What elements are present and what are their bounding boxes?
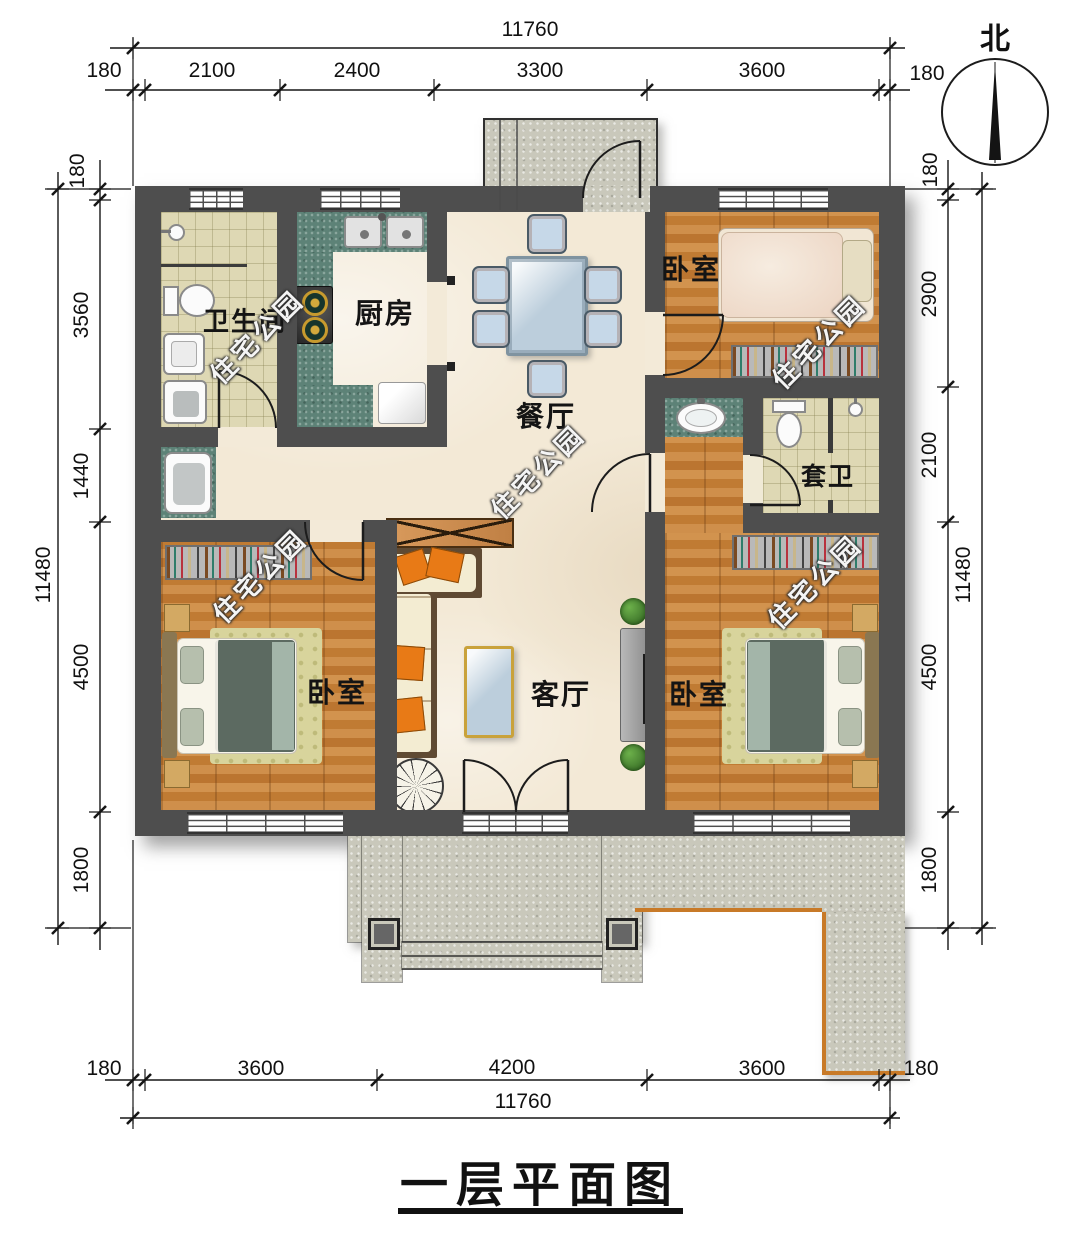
kitchen-sink-left — [344, 216, 382, 248]
divider-cabinet — [386, 518, 514, 548]
shower-arm-icon — [161, 230, 171, 233]
dim-label: 180 — [909, 62, 944, 86]
bedroomTR-door-opening — [645, 312, 665, 375]
washer — [163, 333, 205, 375]
kitchen-counter-bottom — [297, 385, 373, 427]
dining-chair — [527, 214, 567, 254]
coffee-table — [464, 646, 514, 738]
dim-label: 3300 — [517, 59, 564, 83]
terrace-column-right — [606, 918, 638, 950]
wall-pilaster-tab — [447, 276, 455, 285]
wall-hall-stub — [645, 398, 665, 453]
ensuite-partition — [828, 500, 833, 514]
dim-label: 3600 — [739, 1057, 786, 1081]
walkway-horizontal — [635, 836, 822, 912]
room-label-ensuite: 套卫 — [801, 457, 855, 493]
bed-headboard — [162, 632, 177, 758]
dim-label: 180 — [86, 59, 121, 83]
room-label-bedroom-top-right: 卧室 — [661, 248, 721, 288]
plant-icon — [620, 744, 647, 771]
wall-exterior-right — [879, 186, 905, 836]
plant-icon — [620, 598, 647, 625]
bathroom-sink — [163, 380, 207, 424]
bed-throw — [272, 642, 294, 750]
walkway-vertical — [822, 912, 905, 1075]
kitchen-faucet-icon — [378, 213, 386, 221]
dining-chair — [472, 266, 510, 304]
window — [718, 188, 828, 210]
hall-door-opening — [645, 453, 665, 512]
ensuite-toilet-bowl — [776, 412, 802, 448]
room-label-kitchen: 厨房 — [355, 292, 415, 332]
washer-inner — [171, 341, 197, 367]
dim-label: 11760 — [502, 18, 559, 42]
walkway-corner — [822, 836, 905, 912]
entrance-threshold — [462, 812, 568, 834]
basin-inner — [685, 409, 717, 427]
room-label-bedroom-left: 卧室 — [307, 671, 367, 711]
wall-exterior-left — [135, 186, 161, 836]
dim-label: 2400 — [334, 59, 381, 83]
window — [693, 812, 850, 834]
bed-pillow — [838, 646, 862, 684]
bathroom-door-opening — [218, 427, 277, 447]
wall-bedroom-right-left — [645, 512, 665, 810]
dining-table — [506, 256, 588, 356]
window — [189, 188, 243, 210]
ensuite-shower-head-icon — [848, 402, 863, 417]
shower-partition-line — [161, 264, 247, 267]
dim-label: 180 — [919, 152, 943, 187]
dim-label: 3600 — [739, 59, 786, 83]
nightstand — [164, 760, 190, 788]
dining-chair — [527, 360, 567, 398]
sink-drain-icon — [402, 230, 411, 239]
window — [187, 812, 343, 834]
alcove-washbasin — [164, 452, 212, 514]
kitchen-fridge — [378, 382, 426, 424]
dim-label: 11760 — [495, 1090, 552, 1114]
wall-bedroom-left-right — [375, 520, 397, 810]
vanity-faucet-icon — [697, 398, 705, 404]
room-label-bedroom-right: 卧室 — [669, 673, 729, 713]
bed-blanket — [721, 232, 843, 318]
bed-headboard — [865, 632, 880, 758]
room-label-living: 客厅 — [531, 673, 591, 713]
dim-label: 4500 — [70, 644, 94, 691]
dim-label: 4200 — [489, 1056, 536, 1080]
bed-pillow — [180, 708, 204, 746]
north-label: 北 — [980, 14, 1010, 58]
dim-label: 2900 — [918, 271, 942, 318]
window — [320, 188, 400, 210]
wall-kitchen-right-upper — [427, 212, 447, 282]
page-title: 一层平面图 — [400, 1145, 680, 1215]
vanity-sink — [676, 402, 726, 434]
dim-label: 4500 — [918, 644, 942, 691]
dim-label: 11480 — [32, 547, 56, 604]
dim-label: 180 — [66, 153, 90, 188]
wall-ensuite-bottom — [743, 513, 905, 533]
bed-pillow — [838, 708, 862, 746]
dim-label: 11480 — [952, 547, 976, 604]
dim-label: 1800 — [70, 847, 94, 894]
dim-label: 3560 — [70, 292, 94, 339]
title-underline — [398, 1208, 683, 1214]
kitchen-pass-opening — [427, 282, 447, 365]
bedroom-left-door-opening — [310, 520, 363, 542]
nightstand — [164, 604, 190, 632]
dim-label: 2100 — [189, 59, 236, 83]
dim-label: 2100 — [918, 432, 942, 479]
dim-label: 180 — [903, 1057, 938, 1081]
nightstand — [852, 760, 878, 788]
dining-chair — [584, 310, 622, 348]
toilet-tank — [163, 286, 179, 316]
dining-chair — [584, 266, 622, 304]
dim-label: 3600 — [238, 1057, 285, 1081]
rear-door-opening — [583, 186, 650, 212]
dim-label: 180 — [86, 1057, 121, 1081]
nightstand — [852, 604, 878, 632]
wall-bath-kitchen-bottom — [161, 427, 447, 447]
sink-drain-icon — [360, 230, 369, 239]
wall-pilaster-tab — [447, 362, 455, 371]
terrace-column-left — [368, 918, 400, 950]
bed-pillow — [180, 646, 204, 684]
basin-inner — [173, 463, 205, 505]
floor-plan-canvas: 北 卫生间 厨房 餐厅 卧室 套卫 卧室 客厅 卧室 住宅公园 住宅公园 住宅公… — [0, 0, 1080, 1234]
dim-label: 1800 — [918, 847, 942, 894]
ensuite-partition — [828, 398, 833, 453]
bed-throw — [748, 642, 770, 750]
wall-hall-ensuite-upper — [743, 398, 763, 455]
dim-label: 1440 — [70, 453, 94, 500]
terrace-steps — [402, 942, 602, 969]
ensuite-door-opening — [743, 455, 763, 503]
compass-circle — [941, 58, 1049, 166]
terrace-pier-left — [362, 836, 402, 982]
wall-kitchen-right-lower — [427, 365, 447, 447]
kitchen-sink-right — [386, 216, 424, 248]
dining-chair — [472, 310, 510, 348]
basin-inner — [173, 391, 199, 417]
burner-icon — [302, 317, 328, 343]
